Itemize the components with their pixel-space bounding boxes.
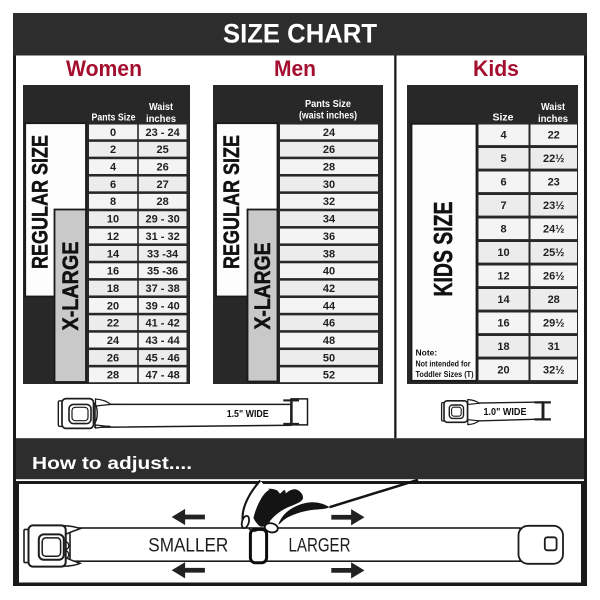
- svg-text:31: 31: [548, 341, 560, 353]
- svg-text:40: 40: [323, 266, 335, 278]
- svg-text:22: 22: [548, 130, 560, 142]
- svg-text:20: 20: [107, 300, 119, 312]
- svg-text:SMALLER: SMALLER: [148, 536, 228, 557]
- svg-text:12: 12: [497, 271, 509, 283]
- svg-text:28: 28: [548, 294, 560, 306]
- svg-text:10: 10: [107, 214, 119, 226]
- svg-text:32½: 32½: [543, 365, 564, 377]
- svg-text:10: 10: [497, 247, 509, 259]
- svg-text:2: 2: [110, 144, 116, 156]
- svg-text:39 - 40: 39 - 40: [145, 300, 179, 312]
- svg-text:Pants Size: Pants Size: [305, 99, 351, 110]
- svg-text:42: 42: [323, 283, 335, 295]
- svg-text:26½: 26½: [543, 271, 564, 283]
- svg-text:8: 8: [500, 224, 506, 236]
- svg-text:Waist: Waist: [541, 102, 566, 113]
- svg-text:X-LARGE: X-LARGE: [250, 243, 275, 330]
- svg-text:16: 16: [497, 318, 509, 330]
- svg-text:4: 4: [110, 162, 117, 174]
- svg-text:18: 18: [107, 283, 119, 295]
- svg-text:22: 22: [107, 318, 119, 330]
- svg-text:Toddler Sizes (T): Toddler Sizes (T): [416, 369, 474, 379]
- svg-text:Size: Size: [493, 113, 514, 124]
- svg-text:52: 52: [323, 370, 335, 382]
- svg-text:LARGER: LARGER: [289, 536, 351, 557]
- svg-text:26: 26: [107, 352, 119, 364]
- svg-text:50: 50: [323, 352, 335, 364]
- svg-text:36: 36: [323, 231, 335, 243]
- svg-text:30: 30: [323, 179, 335, 191]
- svg-text:46: 46: [323, 318, 335, 330]
- svg-text:14: 14: [107, 248, 120, 260]
- svg-text:(waist inches): (waist inches): [299, 111, 357, 122]
- svg-text:REGULAR SIZE: REGULAR SIZE: [219, 135, 244, 269]
- svg-text:0: 0: [110, 127, 116, 139]
- svg-text:6: 6: [110, 179, 116, 191]
- svg-text:16: 16: [107, 266, 119, 278]
- svg-text:KIDS SIZE: KIDS SIZE: [428, 202, 458, 297]
- svg-text:1.0" WIDE: 1.0" WIDE: [484, 406, 527, 418]
- svg-text:47 - 48: 47 - 48: [145, 370, 179, 382]
- svg-text:45 - 46: 45 - 46: [145, 352, 179, 364]
- svg-text:27: 27: [156, 179, 168, 191]
- svg-text:4: 4: [500, 130, 507, 142]
- svg-text:5: 5: [500, 153, 506, 165]
- svg-text:25: 25: [156, 144, 168, 156]
- svg-text:8: 8: [110, 196, 116, 208]
- svg-text:REGULAR SIZE: REGULAR SIZE: [28, 135, 53, 269]
- svg-text:31 - 32: 31 - 32: [145, 231, 179, 243]
- svg-text:24½: 24½: [543, 224, 564, 236]
- svg-text:SIZE CHART: SIZE CHART: [223, 19, 377, 49]
- svg-text:29 - 30: 29 - 30: [145, 214, 179, 226]
- svg-text:23: 23: [548, 177, 560, 189]
- svg-text:23 - 24: 23 - 24: [145, 127, 180, 139]
- svg-text:44: 44: [323, 300, 336, 312]
- svg-text:X-LARGE: X-LARGE: [58, 242, 83, 331]
- svg-text:14: 14: [497, 294, 510, 306]
- svg-text:26: 26: [323, 144, 335, 156]
- svg-text:28: 28: [323, 162, 335, 174]
- svg-text:22½: 22½: [543, 153, 564, 165]
- svg-text:24: 24: [107, 335, 120, 347]
- svg-text:Not intended for: Not intended for: [416, 359, 472, 369]
- svg-text:25½: 25½: [543, 247, 564, 259]
- svg-text:Women: Women: [66, 56, 142, 81]
- svg-text:24: 24: [323, 127, 336, 139]
- svg-text:1.5" WIDE: 1.5" WIDE: [227, 408, 269, 420]
- svg-text:26: 26: [156, 162, 168, 174]
- svg-text:18: 18: [497, 341, 509, 353]
- svg-text:34: 34: [323, 214, 336, 226]
- svg-text:inches: inches: [146, 114, 176, 125]
- svg-text:29½: 29½: [543, 318, 564, 330]
- svg-text:38: 38: [323, 248, 335, 260]
- svg-text:37 - 38: 37 - 38: [145, 283, 179, 295]
- svg-text:Note:: Note:: [416, 348, 438, 358]
- svg-text:33 -34: 33 -34: [147, 248, 179, 260]
- svg-text:48: 48: [323, 335, 335, 347]
- svg-text:20: 20: [497, 365, 509, 377]
- svg-text:35 -36: 35 -36: [147, 266, 178, 278]
- svg-text:28: 28: [156, 196, 168, 208]
- svg-text:6: 6: [500, 177, 506, 189]
- svg-text:41 - 42: 41 - 42: [145, 318, 179, 330]
- svg-text:12: 12: [107, 231, 119, 243]
- svg-text:inches: inches: [538, 114, 568, 125]
- svg-text:Pants Size: Pants Size: [92, 113, 136, 124]
- svg-text:28: 28: [107, 370, 119, 382]
- svg-text:Waist: Waist: [149, 102, 174, 113]
- svg-text:How to adjust....: How to adjust....: [32, 453, 192, 473]
- svg-text:32: 32: [323, 196, 335, 208]
- svg-text:43 - 44: 43 - 44: [145, 335, 180, 347]
- svg-text:Kids: Kids: [473, 56, 519, 81]
- svg-text:23½: 23½: [543, 200, 564, 212]
- svg-text:7: 7: [500, 200, 506, 212]
- svg-text:Men: Men: [274, 56, 316, 81]
